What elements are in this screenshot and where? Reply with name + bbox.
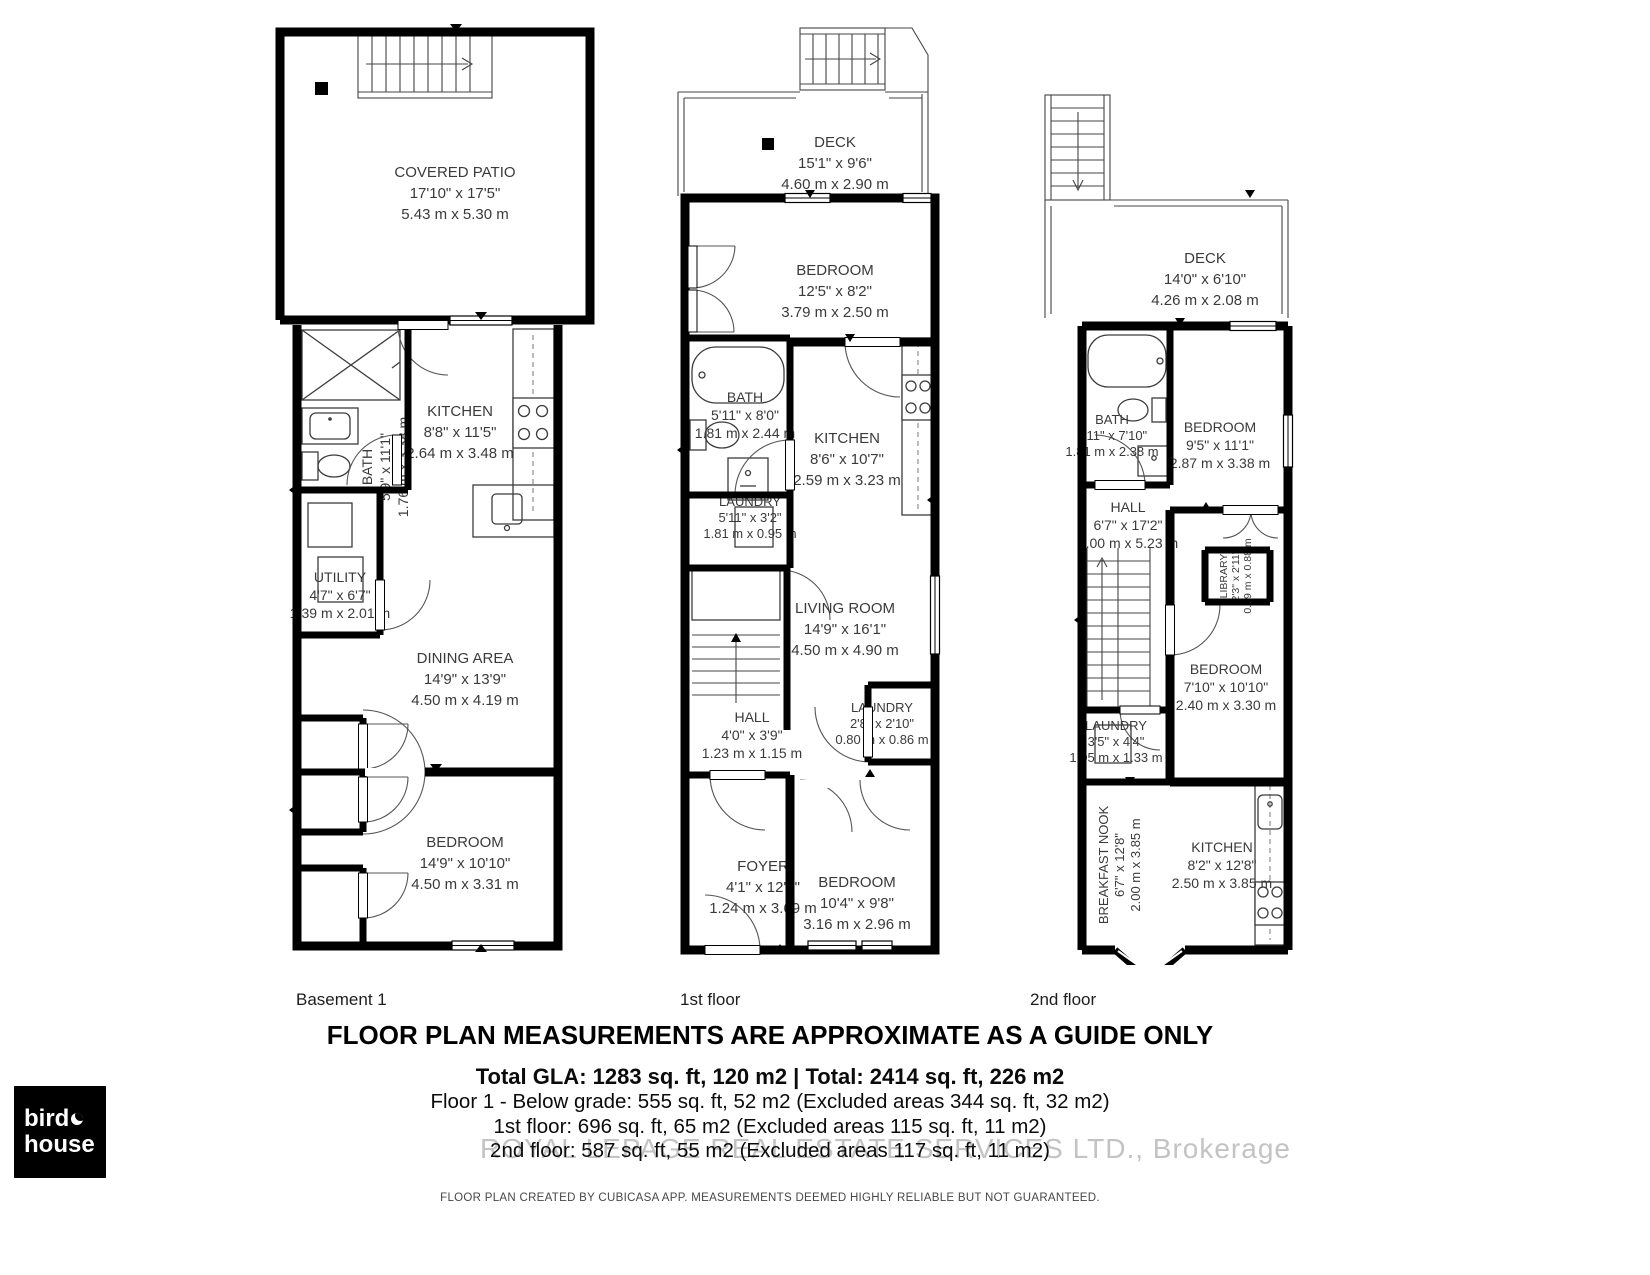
logo-text-bird: bird (24, 1106, 69, 1132)
floorplan-page: { "floors": [ { "label": "Basement 1", "… (0, 0, 1650, 1275)
window (1230, 322, 1293, 468)
basement-walls-layer (270, 20, 610, 965)
disclaimer-title: FLOOR PLAN MEASUREMENTS ARE APPROXIMATE … (0, 1020, 1540, 1051)
window (450, 316, 514, 950)
first-walls-layer (650, 20, 980, 965)
floor1-area-line: Floor 1 - Below grade: 555 sq. ft, 52 m2… (0, 1090, 1540, 1115)
floor-label-second: 2nd floor (1030, 990, 1096, 1010)
floor-plan-basement: COVERED PATIO 17'10" x 17'5" 5.43 m x 5.… (270, 20, 610, 965)
floor-plan-first: DECK 15'1" x 9'6" 4.60 m x 2.90 m BEDROO… (650, 20, 980, 965)
floor-label-first: 1st floor (680, 990, 740, 1010)
floor2-area-line: 1st floor: 696 sq. ft, 65 m2 (Excluded a… (0, 1115, 1540, 1140)
area-summary: Total GLA: 1283 sq. ft, 120 m2 | Total: … (0, 1064, 1540, 1164)
moon-icon (71, 1113, 83, 1125)
floor3-area-line: 2nd floor: 587 sq. ft, 55 m2 (Excluded a… (0, 1139, 1540, 1164)
birdhouse-logo: bird house (14, 1086, 106, 1178)
second-walls-layer (1020, 20, 1320, 965)
logo-text-house: house (24, 1132, 95, 1158)
cubicasa-credit-line: FLOOR PLAN CREATED BY CUBICASA APP. MEAS… (0, 1192, 1540, 1204)
total-gla-line: Total GLA: 1283 sq. ft, 120 m2 | Total: … (0, 1064, 1540, 1090)
floor-label-basement: Basement 1 (296, 990, 387, 1010)
window (785, 194, 940, 951)
floor-plan-second: DECK 14'0" x 6'10" 4.26 m x 2.08 m BATH … (1020, 20, 1320, 965)
